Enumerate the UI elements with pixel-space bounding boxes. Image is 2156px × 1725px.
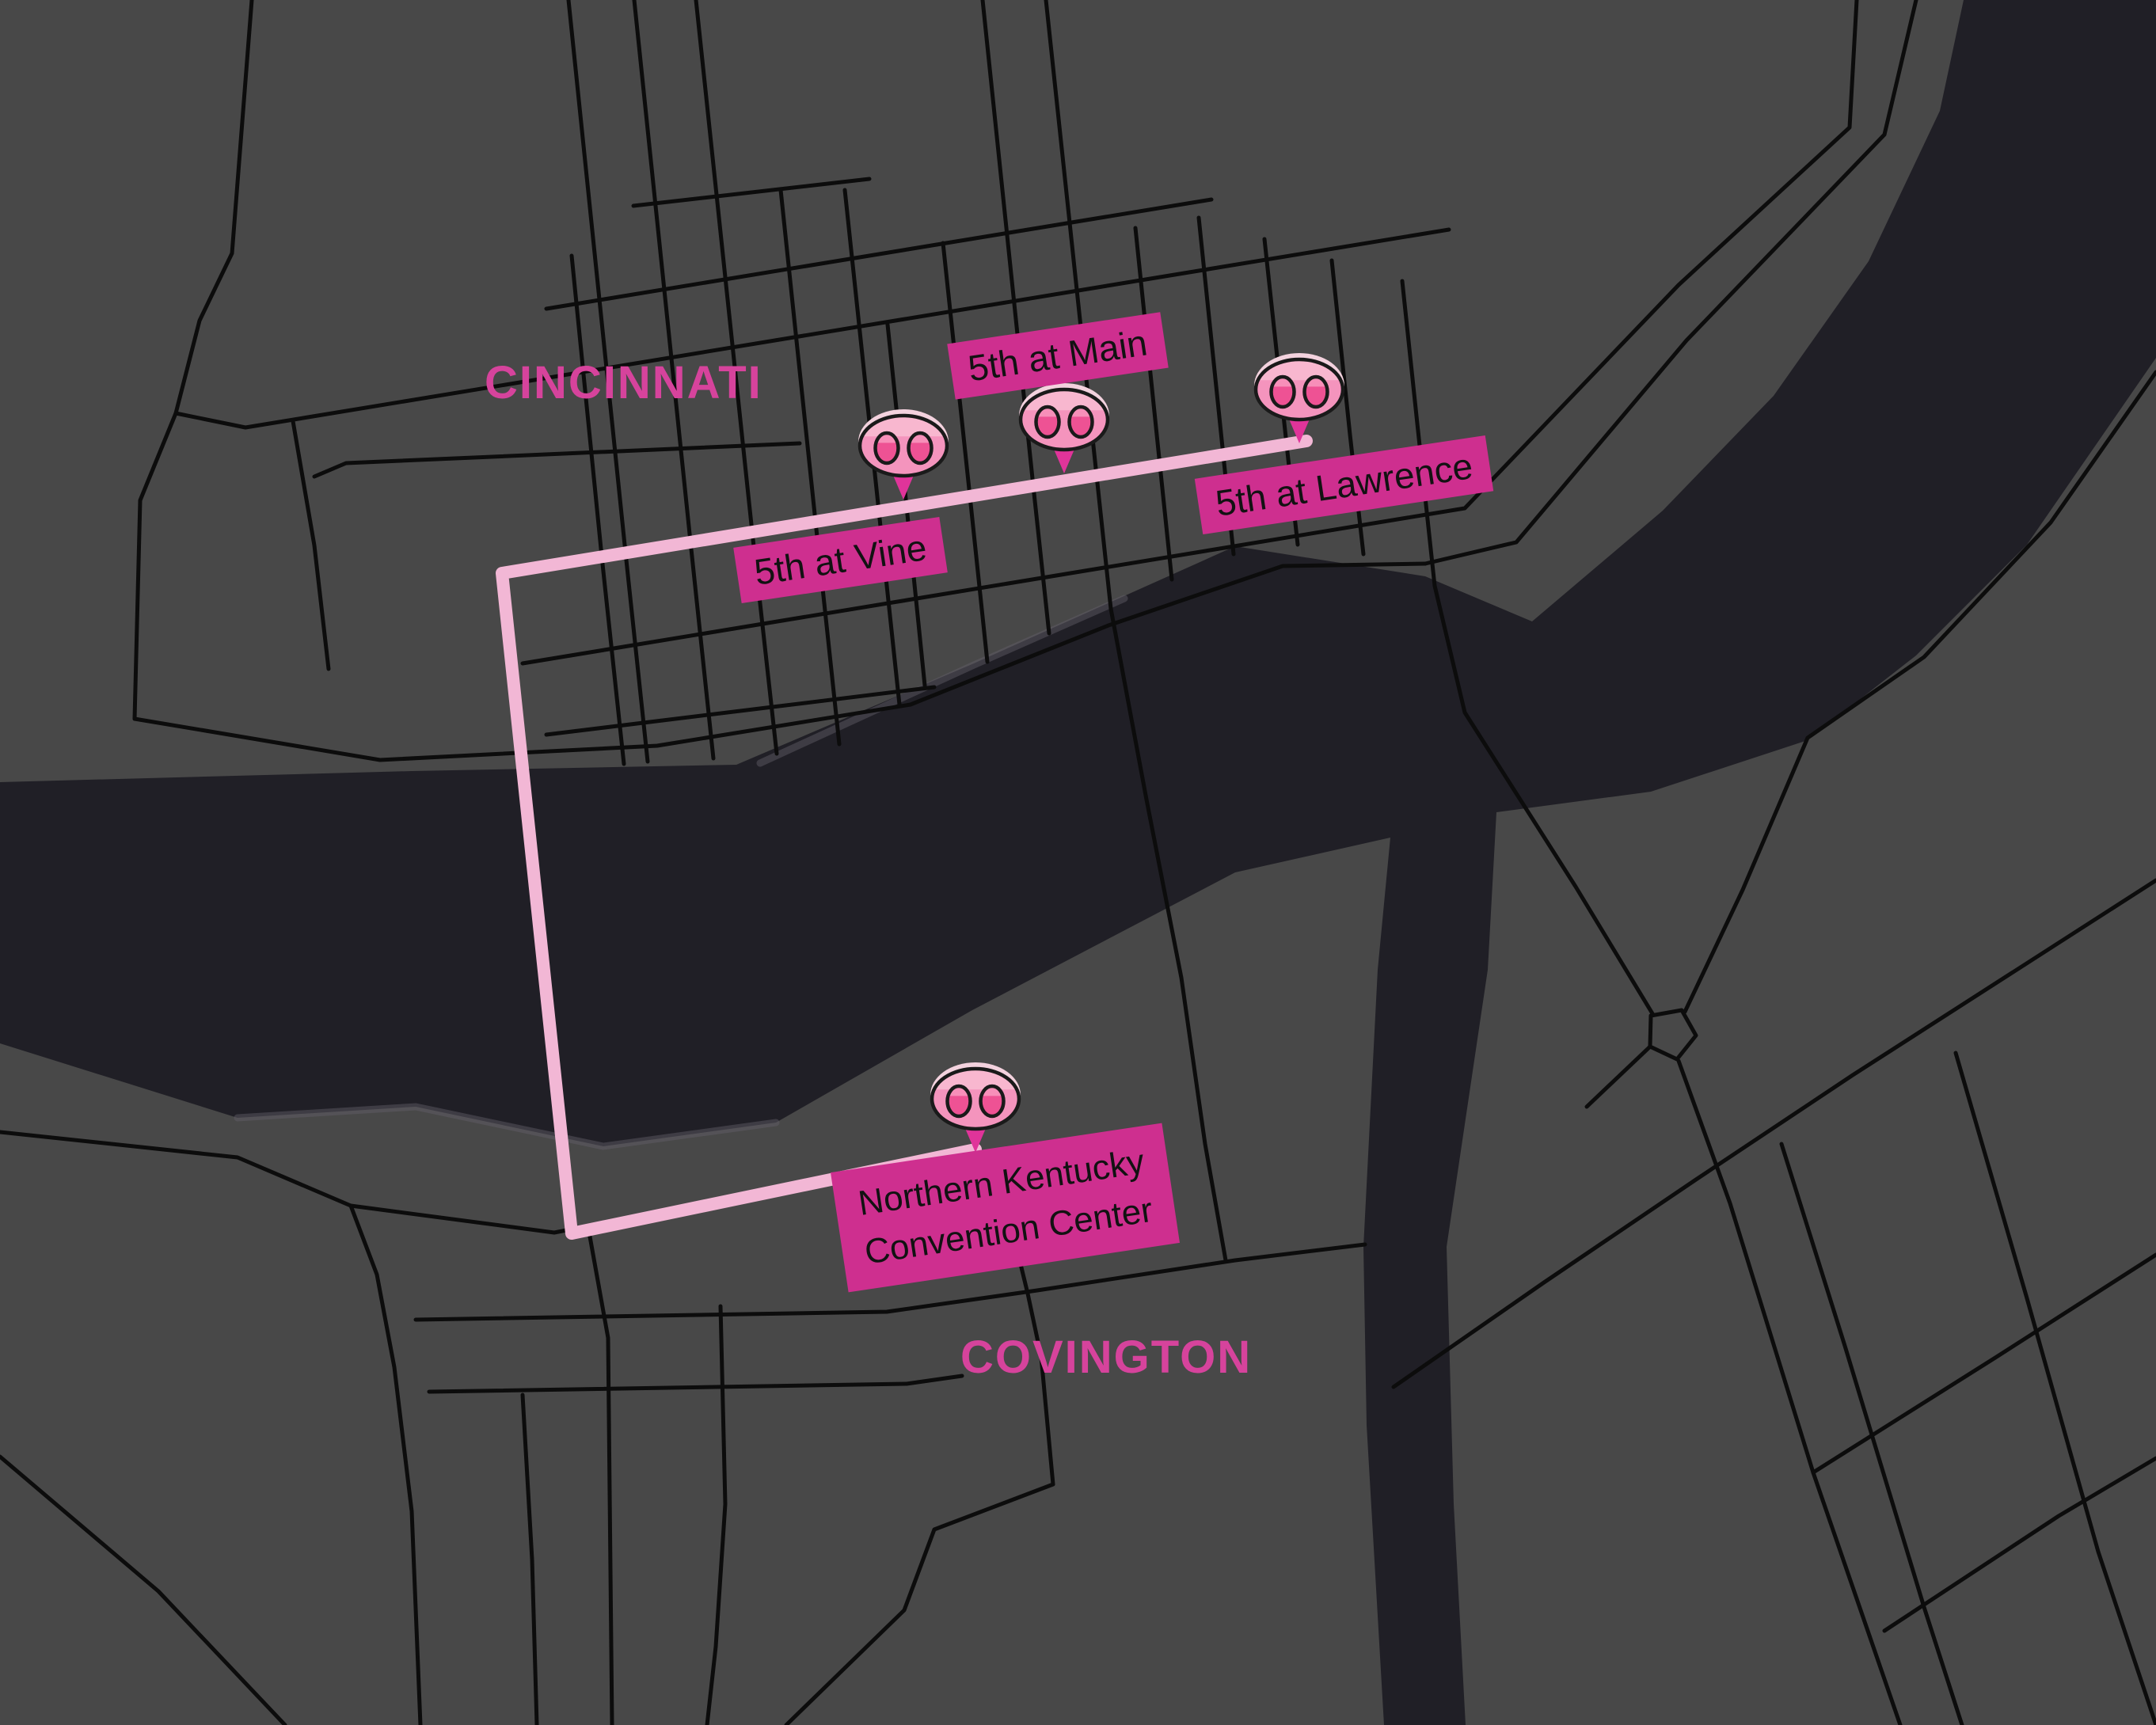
river bbox=[0, 0, 2156, 1725]
transit-map: CINCINNATI COVINGTON 5th at Main 5th at … bbox=[0, 0, 2156, 1725]
pig-nose-marker bbox=[930, 1062, 1021, 1153]
city-label-cincinnati: CINCINNATI bbox=[485, 356, 762, 409]
map-canvas bbox=[0, 0, 2156, 1725]
pig-nose-marker bbox=[1254, 353, 1344, 443]
pig-nose-marker bbox=[858, 409, 949, 500]
city-label-covington: COVINGTON bbox=[960, 1331, 1252, 1384]
